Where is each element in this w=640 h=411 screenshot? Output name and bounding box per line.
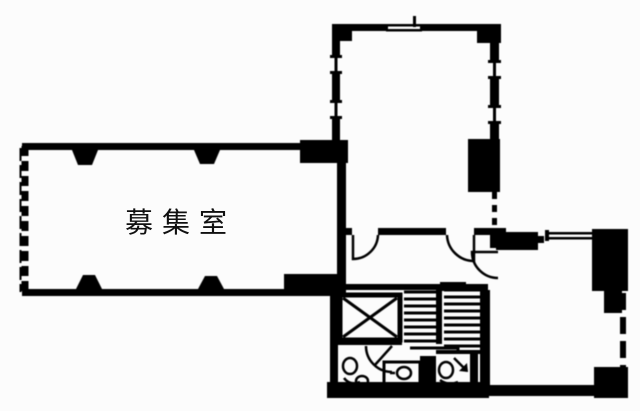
- elevator-icon: [340, 295, 400, 340]
- top-room-walls: [332, 24, 501, 231]
- service-shaft: [420, 356, 436, 396]
- direction-arrow-icon: [454, 358, 468, 372]
- left-room-label: 募集室: [101, 206, 251, 240]
- hall-walls: [336, 228, 506, 291]
- top-room-duct-shaft: [468, 139, 500, 192]
- floorplan-canvas: 募集室: [0, 0, 640, 411]
- staircase-icon: [404, 286, 482, 354]
- door-arc-hall-left: [353, 235, 378, 259]
- stairs-left-flight: [404, 292, 436, 341]
- left-room-window-wall: [21, 146, 26, 293]
- floorplan-drawing: [0, 0, 640, 411]
- door-arc-right-room: [472, 252, 498, 278]
- toilet-fixture-icon: [439, 362, 458, 384]
- right-room-columns: [592, 229, 628, 398]
- toilet-fixtures-icon: [343, 358, 368, 386]
- door-arc-hall-middle: [447, 235, 474, 261]
- stairs-right-flight: [444, 290, 482, 346]
- right-room-window: [545, 230, 592, 241]
- stairs-divider: [436, 286, 442, 344]
- top-room-windows: [330, 16, 501, 124]
